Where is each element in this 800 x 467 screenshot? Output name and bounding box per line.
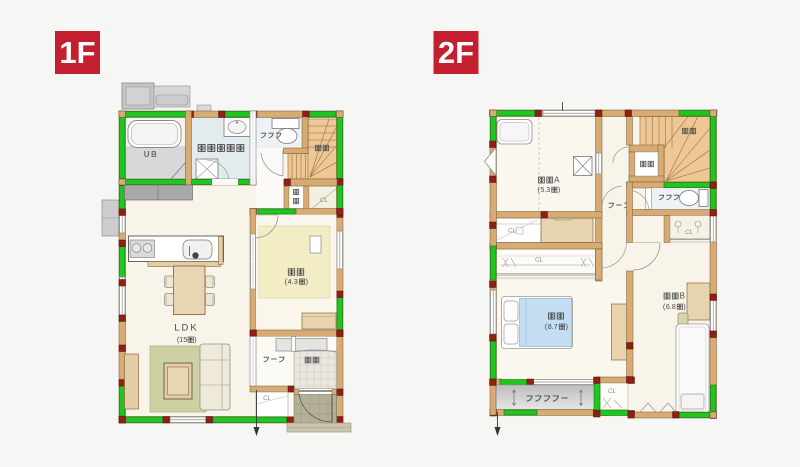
svg-text:A: A (554, 176, 560, 185)
svg-text:15: 15 (179, 335, 187, 344)
svg-text:4.3: 4.3 (288, 277, 298, 286)
svg-text:CL: CL (320, 197, 329, 204)
svg-text:CL: CL (608, 388, 616, 395)
svg-text:5.3: 5.3 (540, 186, 550, 194)
svg-text:): ) (194, 335, 197, 344)
svg-text:): ) (565, 322, 568, 331)
svg-text:CL: CL (263, 396, 271, 402)
svg-text:CL: CL (685, 229, 693, 236)
svg-text:2F: 2F (438, 35, 474, 70)
svg-text:CL: CL (535, 257, 543, 264)
svg-text:): ) (305, 277, 308, 286)
svg-text:LDK: LDK (174, 323, 198, 334)
svg-text:CL: CL (508, 229, 516, 235)
svg-text:1F: 1F (59, 35, 95, 70)
svg-text:6.8: 6.8 (666, 303, 676, 311)
svg-text:UB: UB (144, 150, 159, 159)
svg-text:8.7: 8.7 (548, 322, 558, 331)
svg-text:B: B (680, 292, 685, 301)
